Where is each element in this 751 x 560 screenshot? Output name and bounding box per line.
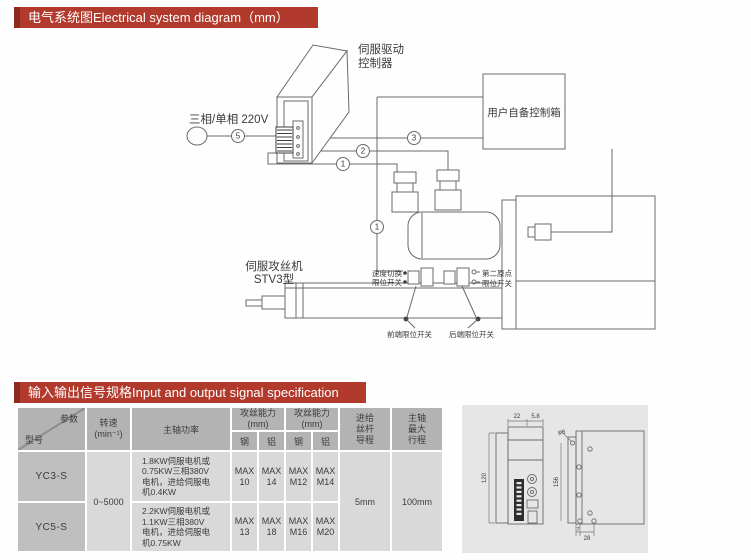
speed-switch-label-line2: 限位开关 <box>372 277 402 287</box>
servo-drive-label-line1: 伺服驱动 <box>358 43 404 56</box>
motor-cable-plug-right <box>435 170 461 210</box>
callout-1a: 1 <box>337 158 350 171</box>
front-view-terminal-connector <box>514 479 524 521</box>
servo-drive-label-line2: 控制器 <box>358 56 393 70</box>
header-stroke: 主轴 最大 行程 <box>392 408 442 450</box>
header-param-model: 参数 型号 <box>18 408 85 450</box>
header-tapping-1: 攻丝能力 (mm) <box>232 408 284 430</box>
header-param: 参数 <box>60 412 78 425</box>
callout-3: 3 <box>408 132 421 145</box>
power-source-label: 三相/单相 220V <box>189 113 269 126</box>
header-steel-1: 钢 <box>232 432 257 450</box>
gearbox-connector <box>528 224 551 240</box>
dim-7: 7 <box>576 527 579 533</box>
drive-terminal-block <box>276 127 293 153</box>
table-row-yc3s: YC3-S 0~5000 1.8KW伺服电机或 0.75KW三相380V 电机，… <box>18 452 442 501</box>
electrical-system-diagram: 5 3 2 1 1 伺服驱动 控制器 三相/单相 220V 用户自备控制箱 伺服… <box>0 0 751 380</box>
callout-1b-num: 1 <box>375 223 380 232</box>
header-feed: 进给 丝杆 导程 <box>340 408 390 450</box>
header-tapping-2: 攻丝能力 (mm) <box>286 408 338 430</box>
cap-alu-cell: MAX 18 <box>259 503 284 551</box>
dim-120: 120 <box>482 472 488 483</box>
cap-steel-cell: MAX M16 <box>286 503 311 551</box>
callout-3-num: 3 <box>412 134 417 143</box>
second-origin-label-line2: 限位开关 <box>482 278 512 288</box>
spec-table: 参数 型号 转速 (min⁻¹) 主轴功率 攻丝能力 (mm) 攻丝能力 (mm… <box>16 406 444 553</box>
motor-cable-plug-left <box>392 172 418 212</box>
header-steel-2: 钢 <box>286 432 311 450</box>
model-cell: YC5-S <box>18 503 85 551</box>
dim-22: 22 <box>514 414 521 420</box>
dim-156: 156 <box>554 476 560 487</box>
second-origin-label-line1: 第二原点 <box>482 268 512 278</box>
header-alu-1: 铝 <box>259 432 284 450</box>
limit-switch-markers <box>404 286 481 328</box>
stroke-cell: 100mm <box>392 452 442 551</box>
dim-hole: φ6 <box>558 430 566 436</box>
speed-switch-label-line1: 速度切换 <box>372 268 402 278</box>
power-source-circle <box>187 127 207 145</box>
cap-steel-cell: MAX 13 <box>232 503 257 551</box>
callout-5-num: 5 <box>236 132 241 141</box>
callout-1a-num: 1 <box>341 160 346 169</box>
feed-cell: 5mm <box>340 452 390 551</box>
tapping-machine <box>246 196 655 329</box>
callout-1b: 1 <box>371 221 384 234</box>
dim-5-8: 5.8 <box>531 414 540 420</box>
power-cell: 1.8KW伺服电机或 0.75KW三相380V 电机，进给伺服电 机0.4KW <box>132 452 230 501</box>
dim-28: 28 <box>584 536 591 542</box>
speed-switch-assembly <box>403 268 433 286</box>
user-control-box-label: 用户自备控制箱 <box>487 106 561 119</box>
callout-2-num: 2 <box>361 147 366 156</box>
section-header-io: 输入输出信号规格Input and output signal specific… <box>14 382 366 403</box>
cap-alu-cell: MAX M20 <box>313 503 338 551</box>
front-limit-label: 前端限位开关 <box>387 329 432 339</box>
cap-alu-cell: MAX M14 <box>313 452 338 501</box>
cap-steel-cell: MAX M12 <box>286 452 311 501</box>
header-power: 主轴功率 <box>132 408 230 450</box>
section-header-io-label: 输入输出信号规格Input and output signal specific… <box>28 385 339 400</box>
header-alu-2: 铝 <box>313 432 338 450</box>
machine-label-line1: 伺服攻丝机 <box>245 259 303 273</box>
speed-cell: 0~5000 <box>87 452 130 551</box>
callout-5: 5 <box>232 130 245 143</box>
power-cell: 2.2KW伺服电机或 1.1KW三相380V 电机，进给伺服电 机0.75KW <box>132 503 230 551</box>
cap-alu-cell: MAX 14 <box>259 452 284 501</box>
rear-limit-label: 后端限位开关 <box>449 329 494 339</box>
dimension-drawing: 22 5.8 120 φ6 156 7 28 <box>455 400 655 558</box>
machine-label-line2: STV3型 <box>254 272 294 286</box>
callout-2: 2 <box>357 145 370 158</box>
cap-steel-cell: MAX 10 <box>232 452 257 501</box>
model-cell: YC3-S <box>18 452 85 501</box>
header-model: 型号 <box>25 433 43 446</box>
header-speed: 转速 (min⁻¹) <box>87 408 130 450</box>
